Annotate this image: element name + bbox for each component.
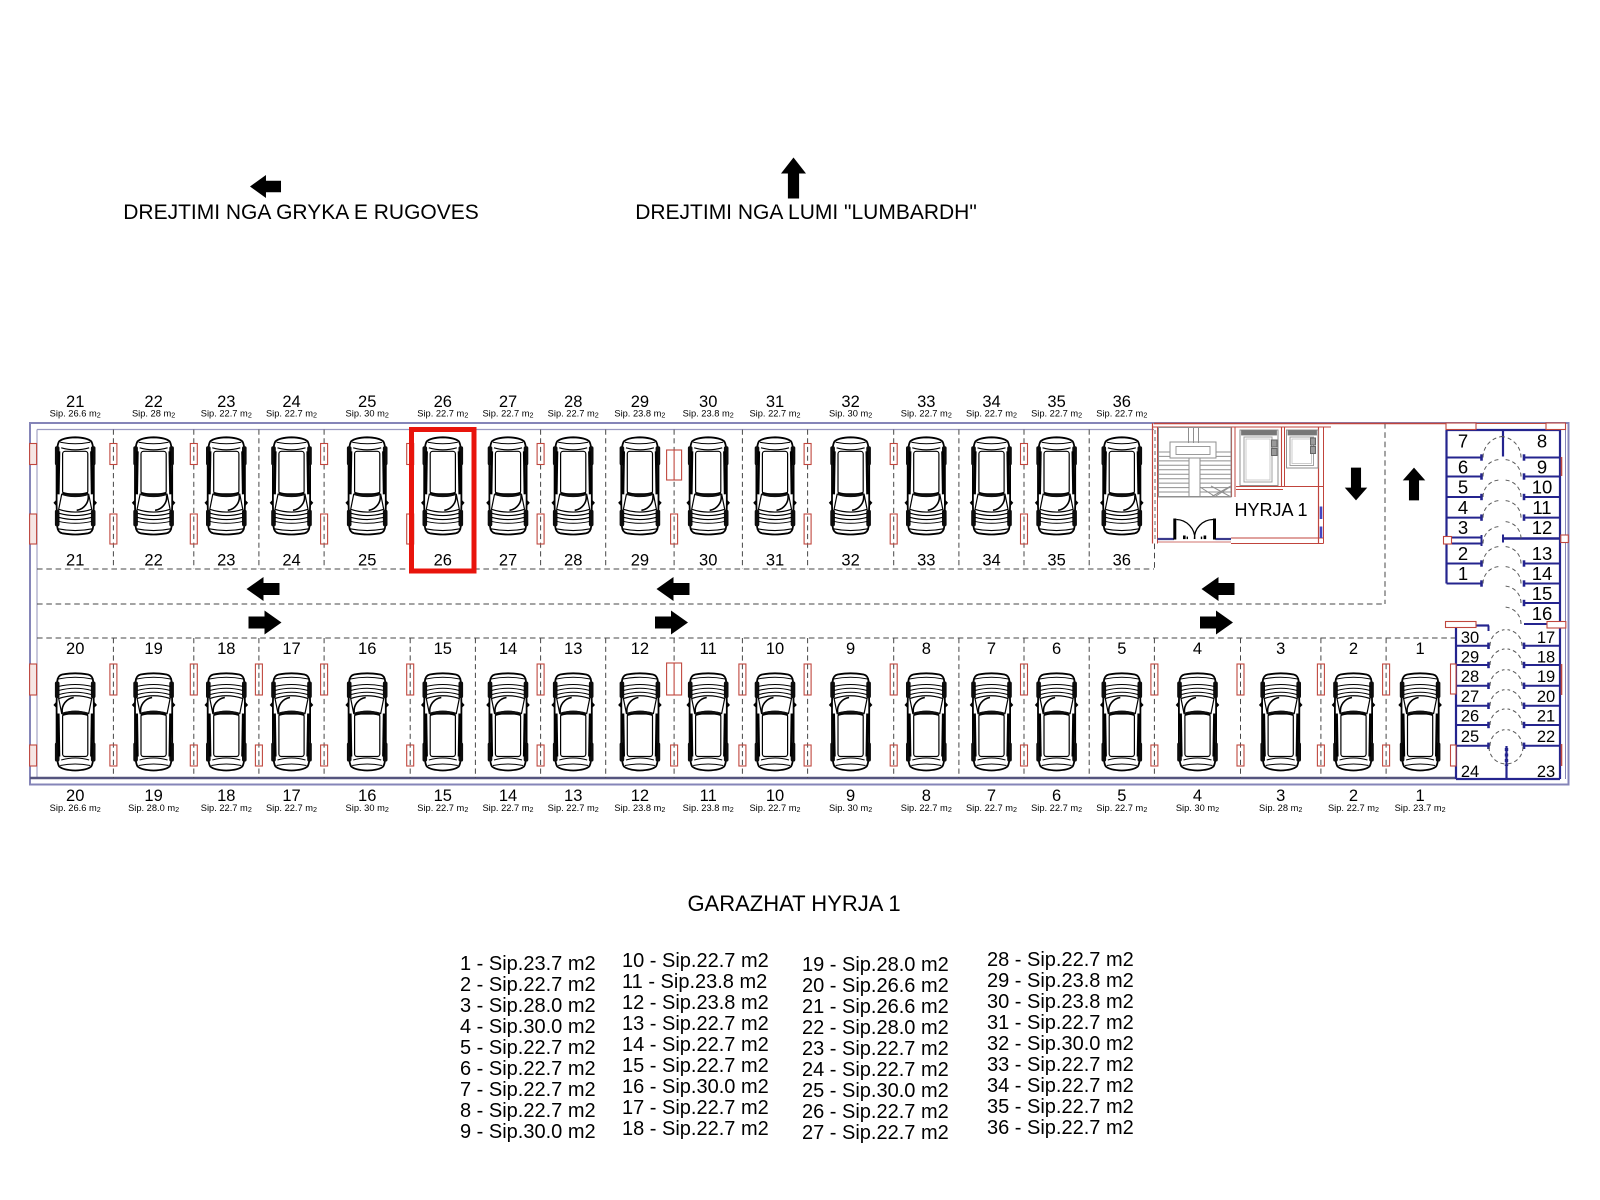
svg-text:1 - Sip.23.7 m2: 1 - Sip.23.7 m2 [460,953,596,975]
svg-text:Sip. 22.7 m2: Sip. 22.7 m2 [749,409,800,420]
svg-text:35: 35 [1047,552,1065,570]
svg-text:2 - Sip.22.7 m2: 2 - Sip.22.7 m2 [460,974,596,996]
svg-text:Sip. 22.7 m2: Sip. 22.7 m2 [1031,409,1082,420]
svg-text:Sip. 22.7 m2: Sip. 22.7 m2 [749,803,800,814]
svg-text:Sip. 30 m2: Sip. 30 m2 [829,409,872,420]
svg-text:21 - Sip.26.6 m2: 21 - Sip.26.6 m2 [802,996,949,1018]
svg-text:Sip. 22.7 m2: Sip. 22.7 m2 [266,803,317,814]
svg-text:GARAZHAT HYRJA 1: GARAZHAT HYRJA 1 [687,891,900,916]
svg-text:34 - Sip.22.7 m2: 34 - Sip.22.7 m2 [987,1075,1134,1097]
svg-text:Sip. 28.0 m2: Sip. 28.0 m2 [128,803,179,814]
svg-text:34: 34 [982,552,1000,570]
svg-text:19 - Sip.28.0 m2: 19 - Sip.28.0 m2 [802,954,949,976]
svg-text:9: 9 [846,640,855,658]
svg-text:13: 13 [564,640,582,658]
svg-text:Sip. 23.8 m2: Sip. 23.8 m2 [683,409,734,420]
svg-text:10: 10 [766,640,784,658]
svg-text:Sip. 28 m2: Sip. 28 m2 [1259,803,1302,814]
svg-text:Sip. 22.7 m2: Sip. 22.7 m2 [1096,803,1147,814]
svg-text:7: 7 [1458,431,1468,452]
svg-text:25 - Sip.30.0 m2: 25 - Sip.30.0 m2 [802,1080,949,1102]
svg-text:30: 30 [1461,629,1479,647]
svg-text:1: 1 [1416,640,1425,658]
svg-text:Sip. 30 m2: Sip. 30 m2 [346,803,389,814]
svg-text:10: 10 [1532,477,1553,498]
svg-text:24 - Sip.22.7 m2: 24 - Sip.22.7 m2 [802,1059,949,1081]
svg-text:17: 17 [1537,629,1555,647]
svg-text:9 - Sip.30.0 m2: 9 - Sip.30.0 m2 [460,1121,596,1143]
svg-text:1: 1 [1458,563,1468,584]
svg-text:16: 16 [358,640,376,658]
svg-text:6: 6 [1052,640,1061,658]
svg-text:7 - Sip.22.7 m2: 7 - Sip.22.7 m2 [460,1079,596,1101]
svg-text:7: 7 [987,640,996,658]
svg-text:Sip. 22.7 m2: Sip. 22.7 m2 [901,803,952,814]
svg-text:18 - Sip.22.7 m2: 18 - Sip.22.7 m2 [622,1118,769,1140]
svg-text:29 - Sip.23.8 m2: 29 - Sip.23.8 m2 [987,970,1134,992]
svg-text:Sip. 22.7 m2: Sip. 22.7 m2 [266,409,317,420]
svg-text:20: 20 [66,640,84,658]
svg-text:Sip. 26.6 m2: Sip. 26.6 m2 [50,803,101,814]
svg-text:Sip. 22.7 m2: Sip. 22.7 m2 [548,803,599,814]
svg-text:13 - Sip.22.7 m2: 13 - Sip.22.7 m2 [622,1013,769,1035]
svg-text:12 - Sip.23.8 m2: 12 - Sip.23.8 m2 [622,992,769,1014]
svg-text:28: 28 [564,552,582,570]
svg-text:26: 26 [1461,708,1479,726]
svg-text:12: 12 [1532,517,1553,538]
svg-text:Sip. 22.7 m2: Sip. 22.7 m2 [417,409,468,420]
svg-text:Sip. 22.7 m2: Sip. 22.7 m2 [966,409,1017,420]
svg-text:16 - Sip.30.0 m2: 16 - Sip.30.0 m2 [622,1076,769,1098]
svg-text:21: 21 [1537,708,1555,726]
svg-text:DREJTIMI NGA LUMI "LUMBARDH": DREJTIMI NGA LUMI "LUMBARDH" [635,201,977,224]
svg-text:11: 11 [1532,497,1551,518]
svg-text:Sip. 22.7 m2: Sip. 22.7 m2 [482,803,533,814]
svg-text:15: 15 [1532,583,1553,604]
svg-text:5 - Sip.22.7 m2: 5 - Sip.22.7 m2 [460,1037,596,1059]
svg-text:31 - Sip.22.7 m2: 31 - Sip.22.7 m2 [987,1012,1134,1034]
svg-text:20 - Sip.26.6 m2: 20 - Sip.26.6 m2 [802,975,949,997]
svg-text:35 - Sip.22.7 m2: 35 - Sip.22.7 m2 [987,1096,1134,1118]
svg-text:19: 19 [144,640,162,658]
svg-text:Sip. 22.7 m2: Sip. 22.7 m2 [482,409,533,420]
svg-text:11 - Sip.23.8 m2: 11 - Sip.23.8 m2 [622,971,767,993]
svg-text:22 - Sip.28.0 m2: 22 - Sip.28.0 m2 [802,1017,949,1039]
svg-text:36: 36 [1113,552,1131,570]
svg-text:8: 8 [1537,431,1547,452]
svg-text:33 - Sip.22.7 m2: 33 - Sip.22.7 m2 [987,1054,1134,1076]
svg-text:25: 25 [358,552,376,570]
svg-text:5: 5 [1117,640,1126,658]
svg-text:18: 18 [217,640,235,658]
svg-text:4: 4 [1458,497,1468,518]
svg-text:21: 21 [66,552,84,570]
svg-text:Sip. 28 m2: Sip. 28 m2 [132,409,175,420]
svg-text:20: 20 [1537,688,1555,706]
svg-text:28 - Sip.22.7 m2: 28 - Sip.22.7 m2 [987,949,1134,971]
svg-text:27: 27 [1461,688,1479,706]
svg-text:Sip. 22.7 m2: Sip. 22.7 m2 [901,409,952,420]
svg-text:Sip. 22.7 m2: Sip. 22.7 m2 [1328,803,1379,814]
svg-text:12: 12 [631,640,649,658]
svg-text:30: 30 [699,552,717,570]
svg-text:31: 31 [766,552,784,570]
svg-text:27: 27 [499,552,517,570]
svg-text:24: 24 [1461,763,1479,781]
svg-text:28: 28 [1461,668,1479,686]
svg-text:15: 15 [434,640,452,658]
svg-text:9: 9 [1537,457,1547,478]
svg-text:Sip. 30 m2: Sip. 30 m2 [346,409,389,420]
svg-text:17: 17 [282,640,300,658]
svg-text:33: 33 [917,552,935,570]
svg-text:Sip. 22.7 m2: Sip. 22.7 m2 [417,803,468,814]
svg-text:Sip. 22.7 m2: Sip. 22.7 m2 [966,803,1017,814]
svg-text:6 - Sip.22.7 m2: 6 - Sip.22.7 m2 [460,1058,596,1080]
svg-text:3: 3 [1276,640,1285,658]
svg-text:HYRJA 1: HYRJA 1 [1234,500,1307,520]
svg-text:Sip. 22.7 m2: Sip. 22.7 m2 [548,409,599,420]
svg-text:4: 4 [1193,640,1202,658]
svg-text:Sip. 22.7 m2: Sip. 22.7 m2 [201,409,252,420]
svg-text:2: 2 [1458,543,1468,564]
svg-text:29: 29 [631,552,649,570]
svg-text:17 - Sip.22.7 m2: 17 - Sip.22.7 m2 [622,1097,769,1119]
svg-text:8: 8 [922,640,931,658]
svg-text:26: 26 [434,552,452,570]
svg-text:3 - Sip.28.0 m2: 3 - Sip.28.0 m2 [460,995,596,1017]
svg-text:Sip. 22.7 m2: Sip. 22.7 m2 [201,803,252,814]
svg-text:4 - Sip.30.0 m2: 4 - Sip.30.0 m2 [460,1016,596,1038]
svg-text:22: 22 [144,552,162,570]
svg-text:Sip. 23.8 m2: Sip. 23.8 m2 [614,803,665,814]
svg-text:6: 6 [1458,457,1468,478]
svg-text:Sip. 22.7 m2: Sip. 22.7 m2 [1096,409,1147,420]
svg-text:5: 5 [1458,477,1468,498]
svg-text:32: 32 [841,552,859,570]
svg-text:15 - Sip.22.7 m2: 15 - Sip.22.7 m2 [622,1055,769,1077]
svg-text:26 - Sip.22.7 m2: 26 - Sip.22.7 m2 [802,1101,949,1123]
svg-text:11: 11 [700,640,717,658]
svg-text:32 - Sip.30.0 m2: 32 - Sip.30.0 m2 [987,1033,1134,1055]
svg-text:36 - Sip.22.7 m2: 36 - Sip.22.7 m2 [987,1117,1134,1139]
svg-text:24: 24 [282,552,300,570]
svg-text:22: 22 [1537,728,1555,746]
svg-text:Sip. 23.8 m2: Sip. 23.8 m2 [683,803,734,814]
svg-text:Sip. 30 m2: Sip. 30 m2 [1176,803,1219,814]
svg-text:16: 16 [1532,603,1553,624]
svg-text:23: 23 [217,552,235,570]
svg-text:8 - Sip.22.7 m2: 8 - Sip.22.7 m2 [460,1100,596,1122]
svg-text:18: 18 [1537,649,1555,667]
svg-text:Sip. 26.6 m2: Sip. 26.6 m2 [50,409,101,420]
svg-text:3: 3 [1458,517,1468,538]
svg-text:30 - Sip.23.8 m2: 30 - Sip.23.8 m2 [987,991,1134,1013]
svg-text:13: 13 [1532,543,1553,564]
svg-text:Sip. 23.7 m2: Sip. 23.7 m2 [1395,803,1446,814]
svg-text:DREJTIMI NGA GRYKA E RUGOVES: DREJTIMI NGA GRYKA E RUGOVES [123,201,479,224]
svg-text:Sip. 22.7 m2: Sip. 22.7 m2 [1031,803,1082,814]
svg-text:29: 29 [1461,649,1479,667]
svg-text:2: 2 [1349,640,1358,658]
svg-text:23 - Sip.22.7 m2: 23 - Sip.22.7 m2 [802,1038,949,1060]
svg-text:25: 25 [1461,728,1479,746]
svg-text:14 - Sip.22.7 m2: 14 - Sip.22.7 m2 [622,1034,769,1056]
svg-text:10 - Sip.22.7 m2: 10 - Sip.22.7 m2 [622,950,769,972]
svg-text:23: 23 [1537,763,1555,781]
svg-text:27 - Sip.22.7 m2: 27 - Sip.22.7 m2 [802,1122,949,1144]
svg-text:14: 14 [499,640,517,658]
svg-text:Sip. 30 m2: Sip. 30 m2 [829,803,872,814]
svg-text:Sip. 23.8 m2: Sip. 23.8 m2 [614,409,665,420]
svg-text:19: 19 [1537,668,1555,686]
svg-text:14: 14 [1532,563,1553,584]
